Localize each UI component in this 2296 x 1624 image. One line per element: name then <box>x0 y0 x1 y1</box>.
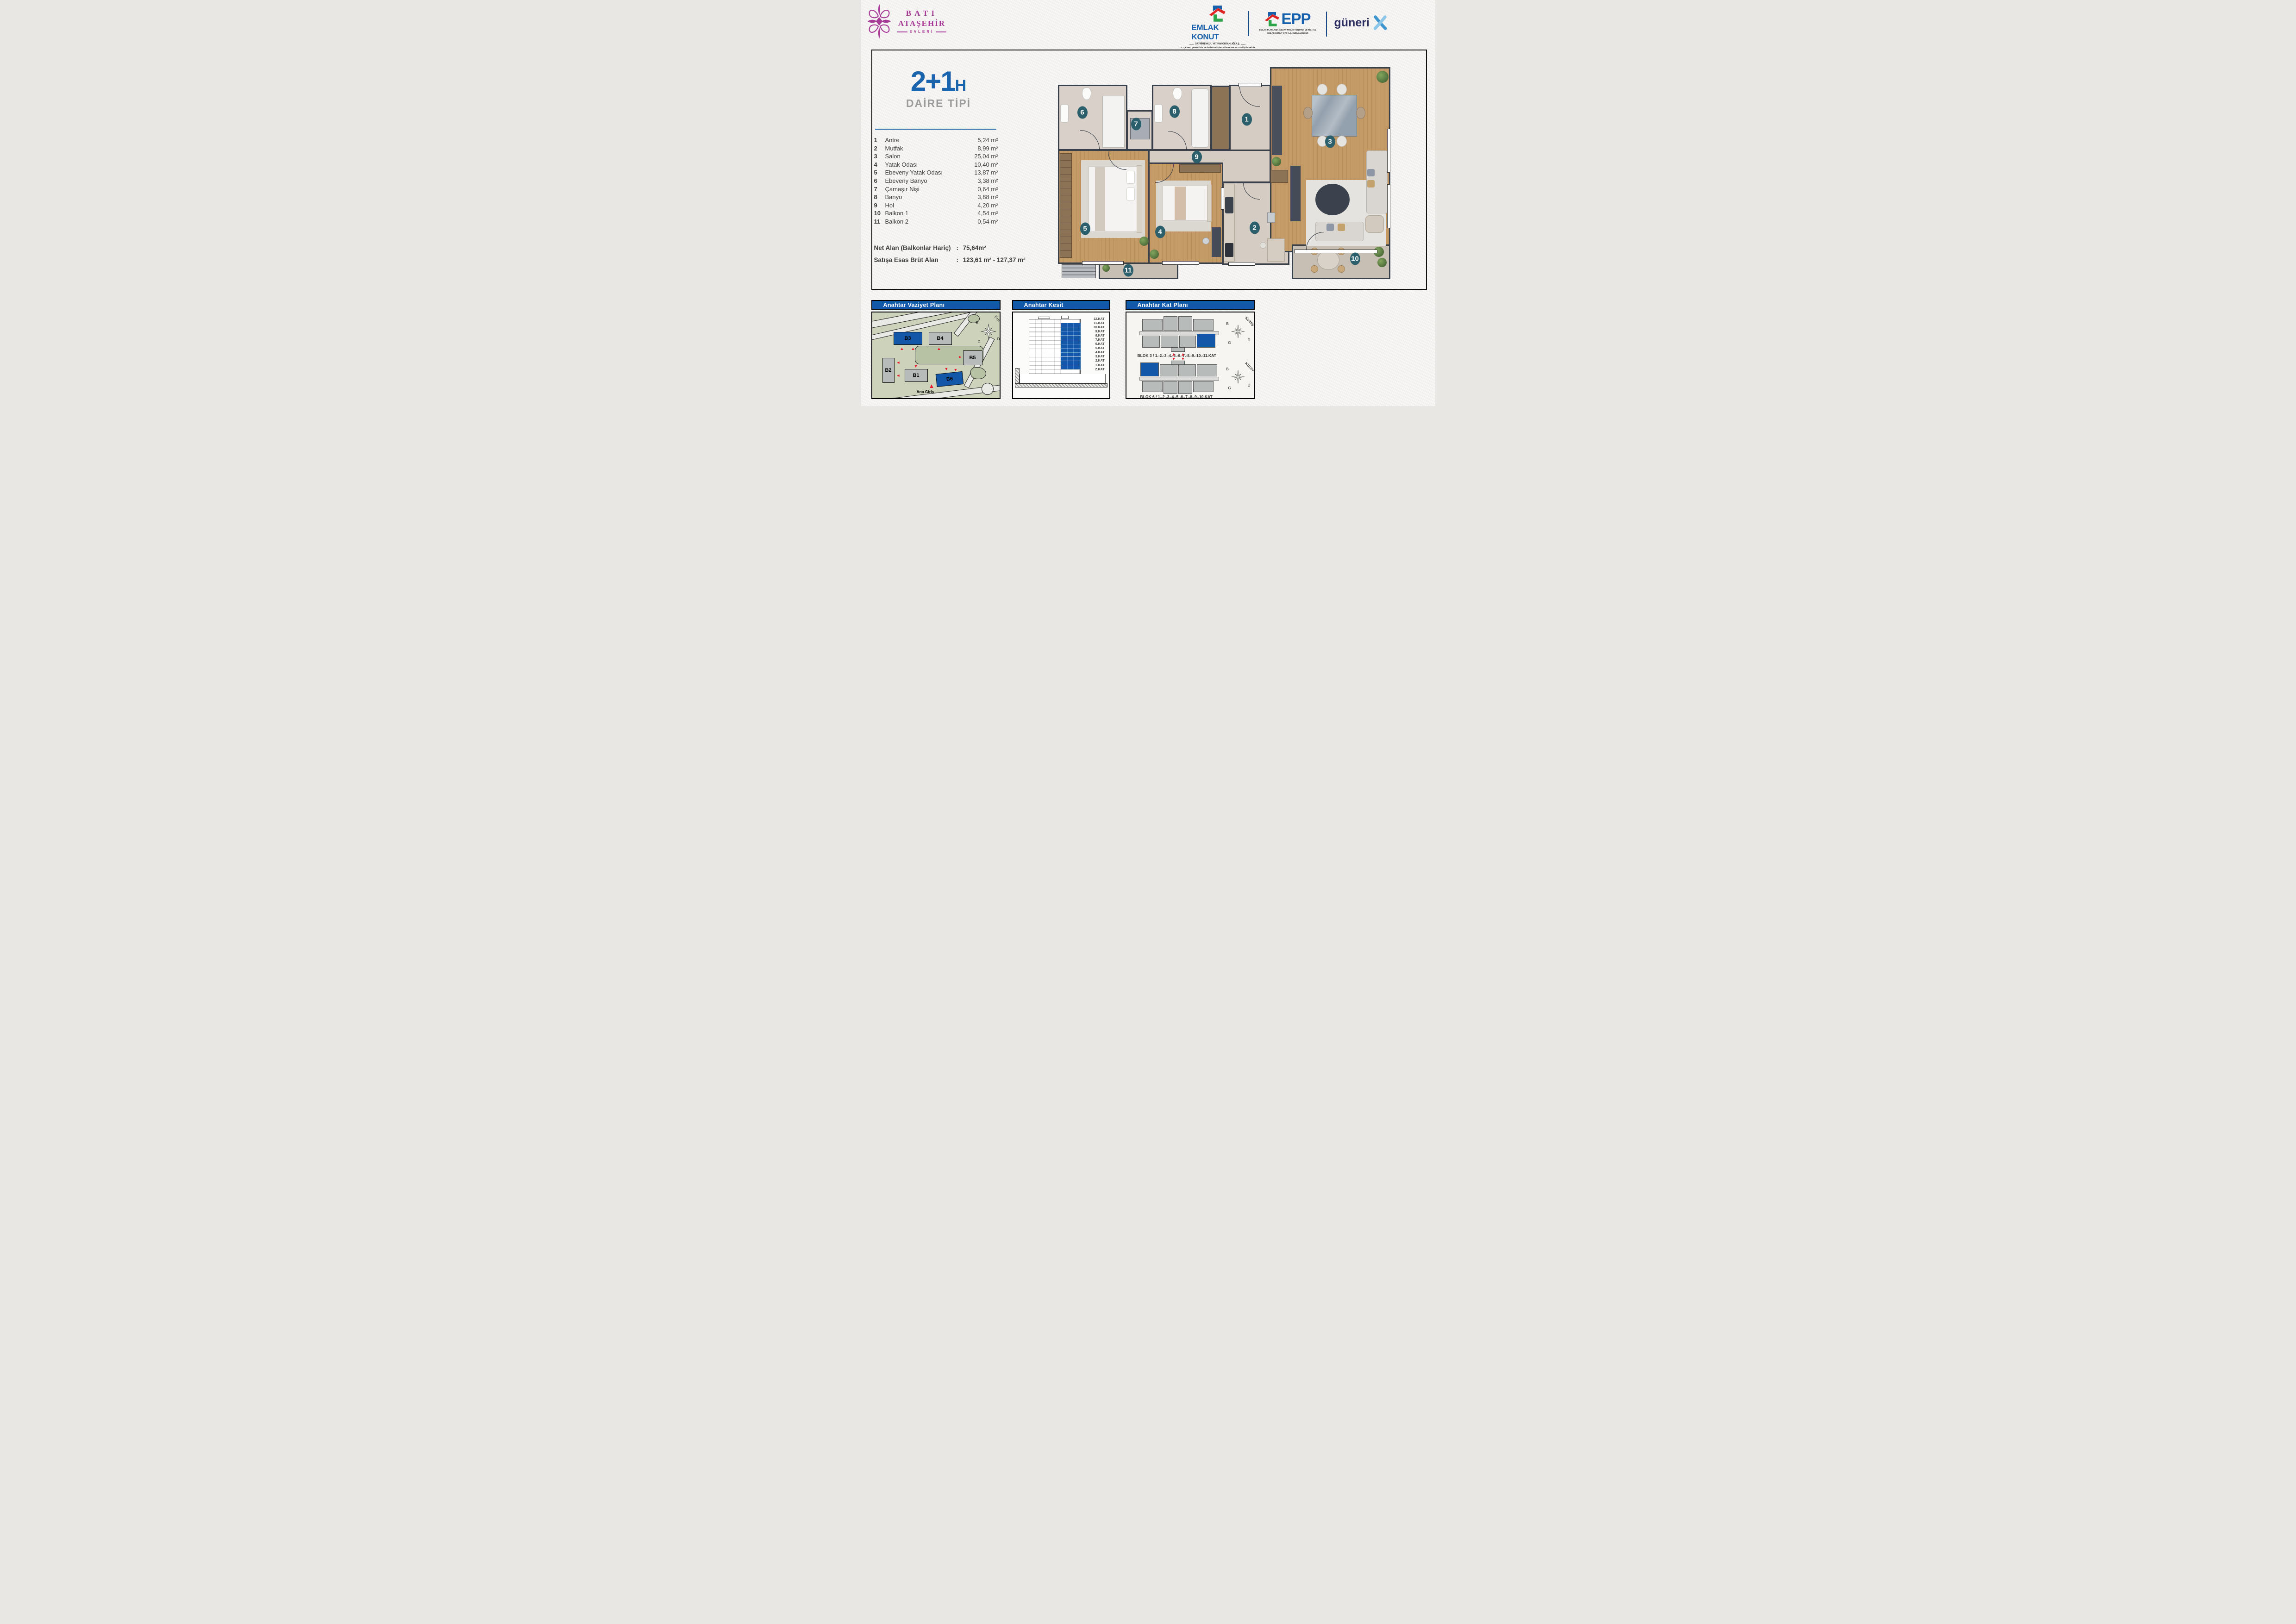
keyplan-corridor <box>1139 377 1219 381</box>
keyplan-unit <box>1193 381 1214 392</box>
wardrobe <box>1060 153 1072 258</box>
sofa-cushion <box>1338 224 1345 231</box>
keyplan-unit <box>1193 319 1214 331</box>
dining-chair <box>1317 84 1327 95</box>
site-plan-title: Anahtar Vaziyet Planı <box>883 302 945 308</box>
floor-label: 1.KAT <box>1083 363 1105 368</box>
plant <box>1272 157 1281 166</box>
keyplan-unit <box>1178 316 1192 331</box>
pillow <box>1126 187 1135 200</box>
keyplan-unit <box>1142 319 1163 331</box>
site-building-b2: B2 <box>882 358 895 383</box>
tv-unit <box>1290 166 1301 221</box>
room-row: 2Mutfak8,99 m² <box>874 145 998 153</box>
room-name: Balkon 2 <box>885 218 978 225</box>
room-name: Salon <box>885 153 975 160</box>
gross-area-row: Satışa Esas Brüt Alan : 123,61 m² - 127,… <box>874 254 1032 266</box>
sofa-cushion <box>1367 169 1375 176</box>
room-no: 4 <box>874 161 885 168</box>
keyplan-header: Anahtar Kat Planı <box>1126 300 1255 310</box>
plan-badge-balkon1: 10 <box>1350 253 1360 265</box>
compass-rose-icon <box>1231 370 1245 384</box>
gross-area-colon: : <box>957 256 963 263</box>
room-no: 6 <box>874 177 885 184</box>
keyplan-content: ▲ ▲ BLOK 3 / 1.-2.-3.-4.-5.-6.-7.-8.-9.-… <box>1126 312 1255 399</box>
title-divider <box>875 129 996 130</box>
compass-rose-icon <box>981 324 996 339</box>
floor-label: 10.KAT <box>1083 325 1105 330</box>
hall-cabinet <box>1270 170 1288 183</box>
floor-label: 4.KAT <box>1083 350 1105 355</box>
ac-unit <box>1062 264 1096 278</box>
brand-line1: BATI <box>906 9 938 18</box>
side-table <box>1365 215 1384 233</box>
site-building-b3: B3 <box>894 332 922 345</box>
epp-name: EPP <box>1281 12 1310 26</box>
header-divider-2 <box>1326 12 1327 37</box>
brand-line2: ATAŞEHİR <box>898 19 945 28</box>
entrance-label: Ana Giriş <box>917 389 934 394</box>
brochure-page: BATI ATAŞEHİR EVLERİ EMLAK KONUT GAYRİME… <box>861 0 1435 406</box>
emlak-konut-sub1: GAYRİMENKUL YATIRIM ORTAKLIĞI A.Ş. <box>1195 43 1240 45</box>
compass-west-label: B <box>1226 322 1229 326</box>
emlak-konut-sub2: T.C. ÇEVRE, ŞEHİRCİLİK VE İKLİM DEĞİŞİKL… <box>1179 46 1255 49</box>
direction-arrow: ▼ <box>945 367 949 371</box>
bed-runner <box>1095 167 1105 231</box>
room-row: 8Banyo3,88 m² <box>874 194 998 202</box>
compass-north-label: Kuzey <box>1245 316 1255 327</box>
keyplan-arrow: ▼ <box>1172 357 1176 361</box>
room-balkon-2 <box>1099 262 1178 279</box>
toilet <box>1082 87 1091 100</box>
window <box>1387 129 1390 173</box>
plant <box>1376 71 1389 83</box>
direction-arrow: ▲ <box>937 347 941 351</box>
net-area-colon: : <box>957 244 963 251</box>
ground-hatch <box>1015 383 1107 387</box>
site-building-b1: B1 <box>905 369 928 382</box>
keyplan-unit <box>1161 336 1178 348</box>
compass-east-label: D <box>1248 383 1251 387</box>
window <box>1162 261 1199 265</box>
room-row: 10Balkon 14,54 m² <box>874 210 998 218</box>
room-area: 4,20 m² <box>977 202 998 209</box>
roof-parapet <box>1061 316 1069 319</box>
epp-logo: EPP EMLAK PLANLAMA İNŞAAT PROJE YÖNETİMİ… <box>1256 12 1320 34</box>
building-label: B5 <box>969 355 976 361</box>
room-row: 3Salon25,04 m² <box>874 153 998 161</box>
room-area: 0,64 m² <box>977 186 998 193</box>
balcony-table <box>1317 250 1339 270</box>
washbasin <box>1154 104 1163 123</box>
plan-badge-mutfak: 2 <box>1250 222 1260 234</box>
plant <box>1102 264 1110 272</box>
bed-runner <box>1175 187 1186 220</box>
roof-parapet <box>1038 317 1050 319</box>
room-no: 1 <box>874 137 885 144</box>
guneri-name: güneri <box>1334 16 1370 30</box>
compass-east-label: D <box>997 337 1000 341</box>
room-area: 25,04 m² <box>974 153 998 160</box>
direction-arrow: ◄ <box>896 361 901 365</box>
compass: Kuzey B D G <box>1227 321 1250 343</box>
compass-west-label: B <box>976 321 978 325</box>
plan-badge-antre: 1 <box>1242 113 1252 126</box>
direction-arrow: ▲ <box>911 347 915 351</box>
compass-west-label: B <box>1226 367 1229 371</box>
window <box>1228 262 1255 266</box>
plan-badge-balkon2: 11 <box>1123 264 1133 277</box>
room-row: 9Hol4,20 m² <box>874 202 998 210</box>
sofa-cushion <box>1326 224 1334 231</box>
compass-east-label: D <box>1248 338 1251 342</box>
section-header: Anahtar Kesit <box>1012 300 1110 310</box>
window <box>1387 184 1390 228</box>
brand-logo: BATI ATAŞEHİR EVLERİ <box>866 3 947 40</box>
direction-arrow: ► <box>958 355 963 359</box>
room-no: 5 <box>874 169 885 176</box>
balcony-chair <box>1338 265 1345 273</box>
direction-arrow: ▼ <box>914 364 918 369</box>
keyplan-unit-highlighted <box>1197 334 1215 348</box>
room-row: 6Ebeveny Banyo3,38 m² <box>874 177 998 186</box>
washbasin <box>1060 104 1069 123</box>
dining-chair <box>1303 107 1313 119</box>
dining-chair <box>1337 84 1347 95</box>
room-row: 7Çamaşır Nişi0,64 m² <box>874 186 998 194</box>
keyplan-entry-stub <box>1171 348 1185 352</box>
plant <box>1150 250 1159 259</box>
floor-label: 6.KAT <box>1083 342 1105 346</box>
bed-headboard <box>1207 185 1212 222</box>
unit-type: 2+1 <box>911 66 955 97</box>
stove <box>1225 243 1233 257</box>
room-no: 7 <box>874 186 885 193</box>
floor-label: 5.KAT <box>1083 346 1105 350</box>
unit-subtitle: DAİRE TİPİ <box>887 97 991 110</box>
dining-table <box>1312 95 1357 137</box>
room-name: Yatak Odası <box>885 161 975 168</box>
brand-rule-left <box>897 31 907 32</box>
building-label: B3 <box>904 336 911 341</box>
plan-badge-hol: 9 <box>1192 151 1202 163</box>
room-name: Hol <box>885 202 978 209</box>
room-row: 5Ebeveny Yatak Odası13,87 m² <box>874 169 998 177</box>
soil-hatch <box>1015 368 1020 384</box>
room-no: 8 <box>874 194 885 200</box>
keyplan-arrow: ▼ <box>1181 357 1185 361</box>
brand-line3: EVLERİ <box>910 30 934 34</box>
site-plan-header: Anahtar Vaziyet Planı <box>871 300 1001 310</box>
room-no: 11 <box>874 218 885 225</box>
roundabout <box>982 383 994 395</box>
block6-caption: BLOK 6 / 1.-2.-3.-4.-5.-6.-7.-8.-9.-10.K… <box>1140 394 1213 399</box>
room-name: Mutfak <box>885 145 978 152</box>
site-building-b4: B4 <box>929 332 952 345</box>
keyplan-unit <box>1142 336 1160 348</box>
room-no: 3 <box>874 153 885 160</box>
room-area: 0,54 m² <box>977 218 998 225</box>
room-area: 4,54 m² <box>977 210 998 217</box>
plan-badge-ebeveyn-yatak: 5 <box>1080 223 1090 235</box>
keyplan-unit-highlighted <box>1140 362 1159 376</box>
plant <box>1139 237 1149 246</box>
kitchen-table <box>1267 238 1285 262</box>
floor-label: 12.KAT <box>1083 317 1105 321</box>
guneri-logo: güneri <box>1334 15 1388 31</box>
compass-south-label: G <box>978 340 981 344</box>
desk <box>1212 227 1221 257</box>
plan-badge-yatak-odasi: 4 <box>1155 226 1165 238</box>
brand-ornament-icon <box>866 3 893 40</box>
pillow <box>1126 171 1135 184</box>
bed-headboard <box>1137 165 1142 233</box>
net-area-row: Net Alan (Balkonlar Hariç) : 75,64m² <box>874 242 1032 254</box>
dining-chair <box>1337 136 1347 147</box>
room-no: 10 <box>874 210 885 217</box>
fridge <box>1267 212 1275 223</box>
section-drawing: 12.KAT 11.KAT 10.KAT 9.KAT 8.KAT 7.KAT 6… <box>1012 312 1110 399</box>
block3-caption: BLOK 3 / 1.-2.-3.-4.-5.-6.-7.-8.-9.-10.-… <box>1138 353 1216 358</box>
highlighted-unit-stack <box>1061 323 1081 369</box>
room-name: Ebeveny Yatak Odası <box>885 169 975 176</box>
gross-area-label: Satışa Esas Brüt Alan <box>874 256 957 263</box>
sofa-cushion <box>1367 180 1375 187</box>
emlak-konut-house-icon <box>1209 6 1226 22</box>
plan-badge-banyo: 8 <box>1170 106 1180 118</box>
coffee-table <box>1315 184 1350 215</box>
floor-label: 8.KAT <box>1083 334 1105 338</box>
room-area: 13,87 m² <box>974 169 998 176</box>
keyplan-unit <box>1178 364 1196 376</box>
plan-badge-ebeveyn-banyo: 6 <box>1077 106 1088 119</box>
wardrobe <box>1179 164 1221 173</box>
emlak-konut-name: EMLAK KONUT <box>1192 23 1244 42</box>
compass: Kuzey B D G <box>977 320 999 342</box>
kitchen-sink <box>1225 197 1233 213</box>
entry-sideboard <box>1272 86 1282 155</box>
plan-badge-salon: 3 <box>1325 136 1335 148</box>
direction-arrow: ▼ <box>954 368 958 372</box>
guneri-x-icon <box>1372 15 1388 31</box>
room-name: Balkon 1 <box>885 210 978 217</box>
plant <box>1377 258 1387 267</box>
floor-label: Z.KAT <box>1083 368 1105 372</box>
room-area: 3,88 m² <box>977 194 998 200</box>
compass: Kuzey B D G <box>1227 366 1250 388</box>
room-no: 9 <box>874 202 885 209</box>
balcony-window <box>1294 250 1377 253</box>
net-area-value: 75,64m² <box>963 244 986 251</box>
garage-level <box>1020 374 1106 383</box>
room-name: Banyo <box>885 194 978 200</box>
site-building-b6: B6 <box>935 371 963 387</box>
compass-south-label: G <box>1228 386 1231 390</box>
kitchen-chair <box>1260 242 1266 249</box>
room-name: Antre <box>885 137 978 144</box>
keyplan-arrow: ▲ <box>1181 352 1185 356</box>
room-area: 5,24 m² <box>977 137 998 144</box>
emlak-rule-right <box>1241 44 1245 44</box>
keyplan-unit <box>1160 364 1177 376</box>
room-schedule: 1Antre5,24 m² 2Mutfak8,99 m² 3Salon25,04… <box>874 137 998 226</box>
section-title: Anahtar Kesit <box>1024 302 1064 308</box>
floor-labels: 12.KAT 11.KAT 10.KAT 9.KAT 8.KAT 7.KAT 6… <box>1083 317 1105 372</box>
room-no: 2 <box>874 145 885 152</box>
site-building-b5: B5 <box>963 350 982 365</box>
header-divider-1 <box>1248 11 1249 36</box>
area-totals: Net Alan (Balkonlar Hariç) : 75,64m² Sat… <box>874 242 1032 266</box>
keyplan-unit <box>1179 336 1196 348</box>
toilet <box>1173 87 1182 100</box>
epp-house-icon <box>1265 12 1280 27</box>
keyplan-title: Anahtar Kat Planı <box>1138 302 1188 308</box>
room-row: 11Balkon 20,54 m² <box>874 218 998 226</box>
epp-sub2: EMLAK KONUT GYO A.Ş. KURULUŞUDUR <box>1267 32 1308 34</box>
plan-badge-camasir: 7 <box>1131 118 1141 131</box>
building-label: B2 <box>885 368 891 373</box>
room-name: Ebeveny Banyo <box>885 177 978 184</box>
floor-label: 2.KAT <box>1083 359 1105 363</box>
floor-label: 7.KAT <box>1083 338 1105 342</box>
building-label: B6 <box>946 376 953 382</box>
direction-arrow: ◄ <box>896 374 901 378</box>
gross-area-value: 123,61 m² - 127,37 m² <box>963 256 1026 263</box>
room-row: 4Yatak Odası10,40 m² <box>874 161 998 169</box>
compass-north-label: Kuzey <box>1245 361 1255 373</box>
entrance-arrow: ▲ <box>929 383 935 389</box>
compass-south-label: G <box>1228 341 1231 345</box>
keyplan-unit <box>1178 381 1192 394</box>
floor-label: 11.KAT <box>1083 321 1105 325</box>
building-label: B4 <box>937 336 943 341</box>
entry-wardrobe <box>1211 86 1230 150</box>
bathtub <box>1191 88 1209 148</box>
epp-sub1: EMLAK PLANLAMA İNŞAAT PROJE YÖNETİMİ VE … <box>1259 29 1316 31</box>
keyplan-arrow: ▲ <box>1172 352 1176 356</box>
keyplan-unit <box>1197 364 1217 376</box>
green-blob <box>970 367 986 379</box>
room-area: 3,38 m² <box>977 177 998 184</box>
floor-label: 3.KAT <box>1083 355 1105 359</box>
compass-rose-icon <box>1231 325 1245 338</box>
room-area: 8,99 m² <box>977 145 998 152</box>
brand-rule-right <box>936 31 946 32</box>
desk-chair <box>1202 237 1209 244</box>
site-plan-map: B3 B4 B5 B2 B1 B6 ▲ ▲ ▲ ◄ ◄ ► ▼ ▼ ▼ ▲ An… <box>871 312 1001 399</box>
shower-tray <box>1102 96 1125 148</box>
room-name: Çamaşır Nişi <box>885 186 978 193</box>
brand-wordmark: BATI ATAŞEHİR EVLERİ <box>897 9 947 34</box>
direction-arrow: ▲ <box>900 347 904 351</box>
balcony-chair <box>1311 265 1318 273</box>
emlak-rule-left <box>1189 44 1194 44</box>
room-area: 10,40 m² <box>974 161 998 168</box>
dining-chair <box>1356 107 1365 119</box>
floor-plan: 1 2 3 4 5 6 7 8 9 10 11 <box>1058 66 1390 281</box>
unit-title-block: 2+1H DAİRE TİPİ <box>887 68 991 110</box>
window <box>1082 261 1124 265</box>
keyplan-unit <box>1164 316 1177 331</box>
keyplan-unit <box>1142 381 1163 392</box>
emlak-konut-logo: EMLAK KONUT GAYRİMENKUL YATIRIM ORTAKLIĞ… <box>1192 6 1244 49</box>
floor-label: 9.KAT <box>1083 330 1105 334</box>
net-area-label: Net Alan (Balkonlar Hariç) <box>874 244 957 251</box>
keyplan-unit <box>1164 381 1177 394</box>
window <box>1221 187 1224 210</box>
building-label: B1 <box>913 373 919 378</box>
room-row: 1Antre5,24 m² <box>874 137 998 145</box>
single-bed <box>1163 186 1212 221</box>
unit-type-suffix: H <box>955 77 967 94</box>
